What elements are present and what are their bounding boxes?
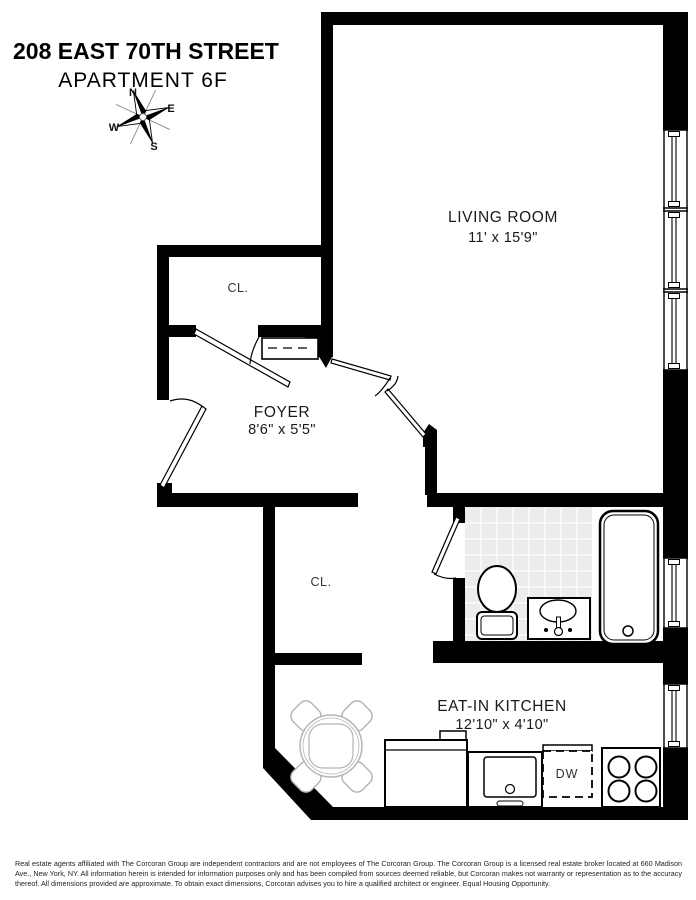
living-room-doors — [331, 359, 426, 437]
foyer-label: FOYER — [254, 404, 310, 421]
lower-closet-label: CL. — [311, 575, 332, 589]
living-room-label: LIVING ROOM — [448, 209, 558, 226]
compass-west-label: W — [109, 122, 120, 134]
compass-east-label: E — [167, 103, 174, 115]
dishwasher-label: DW — [556, 767, 579, 781]
refrigerator — [385, 731, 467, 807]
kitchen-sink — [468, 752, 542, 807]
kitchen-dims: 12'10" x 4'10" — [455, 717, 548, 733]
bathroom-window — [663, 558, 688, 628]
walls — [157, 12, 688, 820]
kitchen-table-and-chairs — [288, 698, 376, 796]
compass-north-label: N — [129, 87, 137, 99]
stove — [602, 748, 660, 807]
legal-disclaimer: Real estate agents affiliated with The C… — [15, 859, 682, 889]
bathroom-sink — [528, 598, 590, 639]
bathroom-door — [432, 517, 460, 579]
foyer-dims: 8'6" x 5'5" — [248, 422, 316, 438]
foyer-shelf — [262, 338, 318, 359]
living-room-windows — [663, 130, 688, 370]
dishwasher: DW — [543, 745, 592, 797]
living-room-dims: 11' x 15'9" — [468, 230, 538, 246]
kitchen-label: EAT-IN KITCHEN — [437, 698, 567, 715]
floor-plan-page: 208 EAST 70TH STREET APARTMENT 6F — [0, 0, 696, 900]
compass-south-label: S — [150, 141, 157, 153]
entry-door — [160, 399, 206, 488]
compass-rose-icon: N E W S — [107, 81, 179, 153]
kitchen-window — [663, 684, 688, 748]
upper-closet-label: CL. — [228, 281, 249, 295]
bathtub — [600, 511, 658, 644]
toilet — [477, 566, 517, 639]
floor-plan-drawing: DW — [0, 0, 696, 900]
